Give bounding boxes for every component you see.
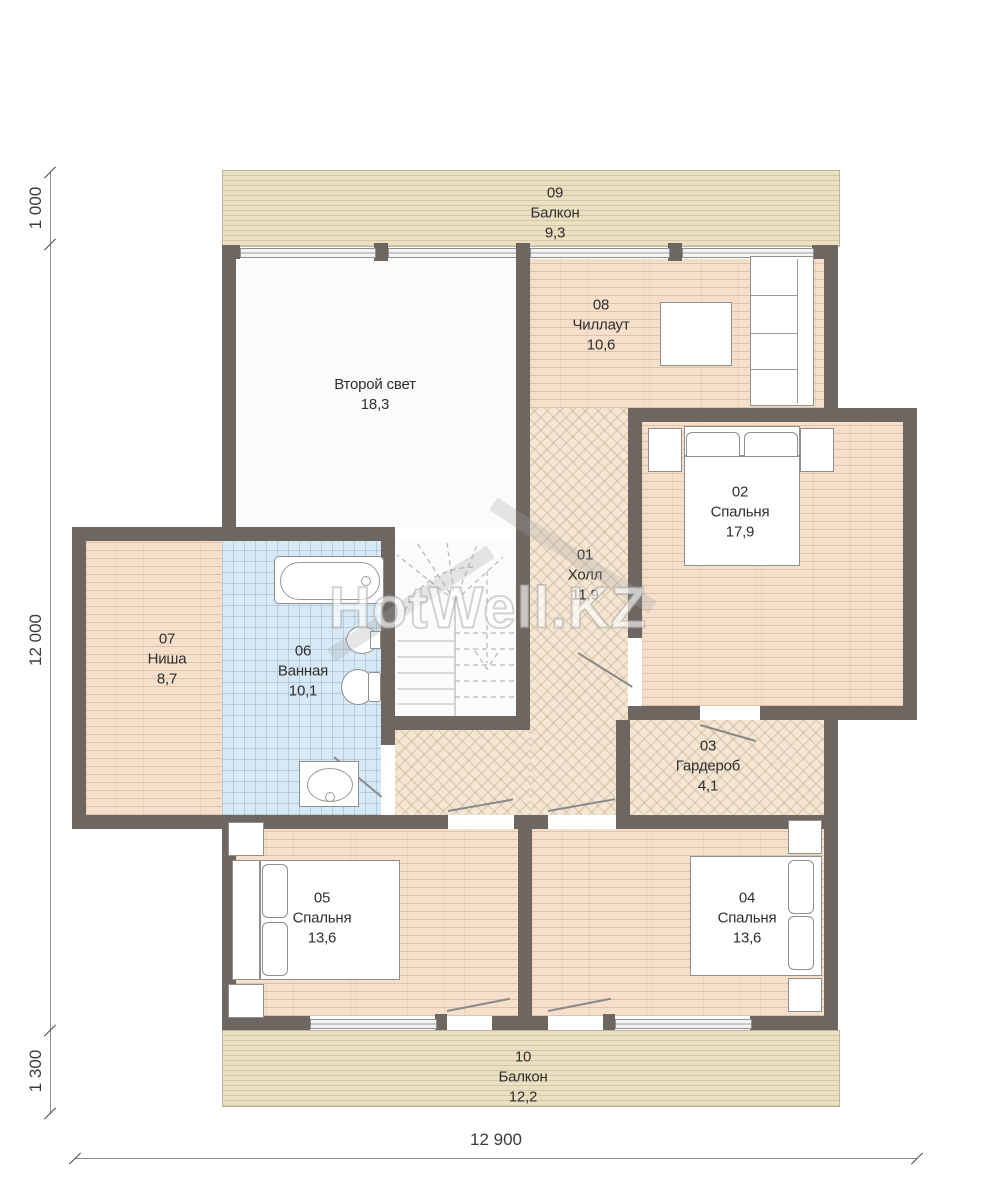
door-gap-room-05 xyxy=(448,815,514,829)
wall xyxy=(616,815,630,829)
room-05-name: Спальня xyxy=(293,908,352,928)
wall xyxy=(760,706,917,720)
nightstand xyxy=(800,428,834,472)
nightstand xyxy=(228,822,264,856)
wall-pillar xyxy=(603,1014,615,1030)
pillow xyxy=(262,864,288,918)
wall-pillar xyxy=(668,243,682,261)
dimension-balcony-top: 1 000 xyxy=(26,187,46,230)
sofa xyxy=(750,256,814,406)
nightstand xyxy=(648,428,682,472)
room-05-area: 13,6 xyxy=(293,928,352,948)
wall xyxy=(72,527,86,829)
nightstand xyxy=(788,978,822,1012)
stairs-drawing xyxy=(395,541,516,716)
room-10-label: 10 Балкон 12,2 xyxy=(498,1047,547,1106)
room-08-label: 08 Чиллаут 10,6 xyxy=(572,295,629,354)
window xyxy=(240,248,376,258)
bathtub xyxy=(274,556,384,604)
pillow xyxy=(788,916,814,970)
balcony-door-gap-room-04 xyxy=(548,1016,603,1030)
window xyxy=(615,1019,752,1029)
wall xyxy=(72,527,392,541)
dimension-house-width: 12 900 xyxy=(470,1130,522,1150)
sink-tap xyxy=(370,631,381,649)
bed-headboard xyxy=(232,860,260,980)
room-04-number: 04 xyxy=(718,888,777,908)
wall xyxy=(492,1016,548,1030)
room-03-area: 4,1 xyxy=(676,776,740,796)
toilet-tank xyxy=(368,672,381,702)
floor-plan: Второй свет 18,3 09 Балкон 9,3 08 Чиллау… xyxy=(0,0,992,1200)
wall xyxy=(222,245,236,540)
sofa-cushion-line xyxy=(751,295,797,296)
room-01-number: 01 xyxy=(568,545,603,565)
sofa-backrest-line xyxy=(797,259,798,403)
room-07-name: Ниша xyxy=(148,649,187,669)
dimension-balcony-bottom: 1 300 xyxy=(26,1050,46,1093)
room-09-name: Балкон xyxy=(530,203,579,223)
room-02-number: 02 xyxy=(711,482,770,502)
wall xyxy=(750,1016,838,1030)
room-07-label: 07 Ниша 8,7 xyxy=(148,629,187,688)
wall xyxy=(616,720,630,829)
room-05-number: 05 xyxy=(293,888,352,908)
window xyxy=(388,248,518,258)
room-03-number: 03 xyxy=(676,736,740,756)
second-light-area: 18,3 xyxy=(334,395,416,415)
vanity-drain xyxy=(325,792,335,802)
pillow xyxy=(788,860,814,914)
room-08-number: 08 xyxy=(572,295,629,315)
wall xyxy=(903,408,917,720)
room-10-area: 12,2 xyxy=(498,1087,547,1107)
vanity xyxy=(299,761,359,807)
room-02-label: 02 Спальня 17,9 xyxy=(711,482,770,541)
wall xyxy=(516,245,530,730)
dimension-line-bottom xyxy=(75,1158,917,1159)
wall xyxy=(824,720,838,1016)
room-08-name: Чиллаут xyxy=(572,315,629,335)
room-07-area: 8,7 xyxy=(148,669,187,689)
dimension-line-left xyxy=(50,172,51,1114)
sofa-cushion-line xyxy=(751,333,797,334)
hall-floor xyxy=(530,408,628,815)
nightstand xyxy=(228,984,264,1018)
room-10-number: 10 xyxy=(498,1047,547,1067)
dimension-house-height: 12 000 xyxy=(26,614,46,666)
wall xyxy=(628,408,917,422)
room-04-label: 04 Спальня 13,6 xyxy=(718,888,777,947)
room-05-label: 05 Спальня 13,6 xyxy=(293,888,352,947)
pillow xyxy=(262,922,288,976)
room-03-name: Гардероб xyxy=(676,756,740,776)
second-light-name: Второй свет xyxy=(334,375,416,395)
room-02-area: 17,9 xyxy=(711,522,770,542)
room-01-name: Холл xyxy=(568,565,603,585)
bathtub-drain xyxy=(361,576,371,586)
room-02-name: Спальня xyxy=(711,502,770,522)
wall xyxy=(824,245,838,408)
room-06-name: Ванная xyxy=(278,661,328,681)
wall xyxy=(222,1016,310,1030)
door-gap-room-04 xyxy=(548,815,616,829)
room-04-name: Спальня xyxy=(718,908,777,928)
stairwell xyxy=(395,541,516,716)
room-07-number: 07 xyxy=(148,629,187,649)
room-03-label: 03 Гардероб 4,1 xyxy=(676,736,740,795)
hall-corridor-floor xyxy=(395,730,530,815)
door-gap-bathroom xyxy=(381,745,395,810)
table xyxy=(660,302,732,366)
wall xyxy=(628,412,642,638)
window xyxy=(530,248,670,258)
room-10-name: Балкон xyxy=(498,1067,547,1087)
window xyxy=(310,1019,437,1029)
balcony-door-gap-room-05 xyxy=(447,1016,492,1030)
room-04-area: 13,6 xyxy=(718,928,777,948)
room-09-label: 09 Балкон 9,3 xyxy=(530,183,579,242)
room-06-number: 06 xyxy=(278,641,328,661)
wall xyxy=(392,815,448,829)
door-gap-room-02 xyxy=(628,638,642,706)
sofa-cushion-line xyxy=(751,369,797,370)
room-09-area: 9,3 xyxy=(530,223,579,243)
room-06-area: 10,1 xyxy=(278,681,328,701)
wall xyxy=(381,716,530,730)
wall xyxy=(518,824,532,1018)
door-gap-room-03 xyxy=(700,706,760,720)
room-01-area: 11,9 xyxy=(568,585,603,605)
room-08-area: 10,6 xyxy=(572,335,629,355)
second-light-label: Второй свет 18,3 xyxy=(334,375,416,415)
room-06-label: 06 Ванная 10,1 xyxy=(278,641,328,700)
wall-pillar xyxy=(374,243,388,261)
wall xyxy=(628,706,700,720)
room-09-number: 09 xyxy=(530,183,579,203)
room-01-label: 01 Холл 11,9 xyxy=(568,545,603,604)
nightstand xyxy=(788,820,822,854)
